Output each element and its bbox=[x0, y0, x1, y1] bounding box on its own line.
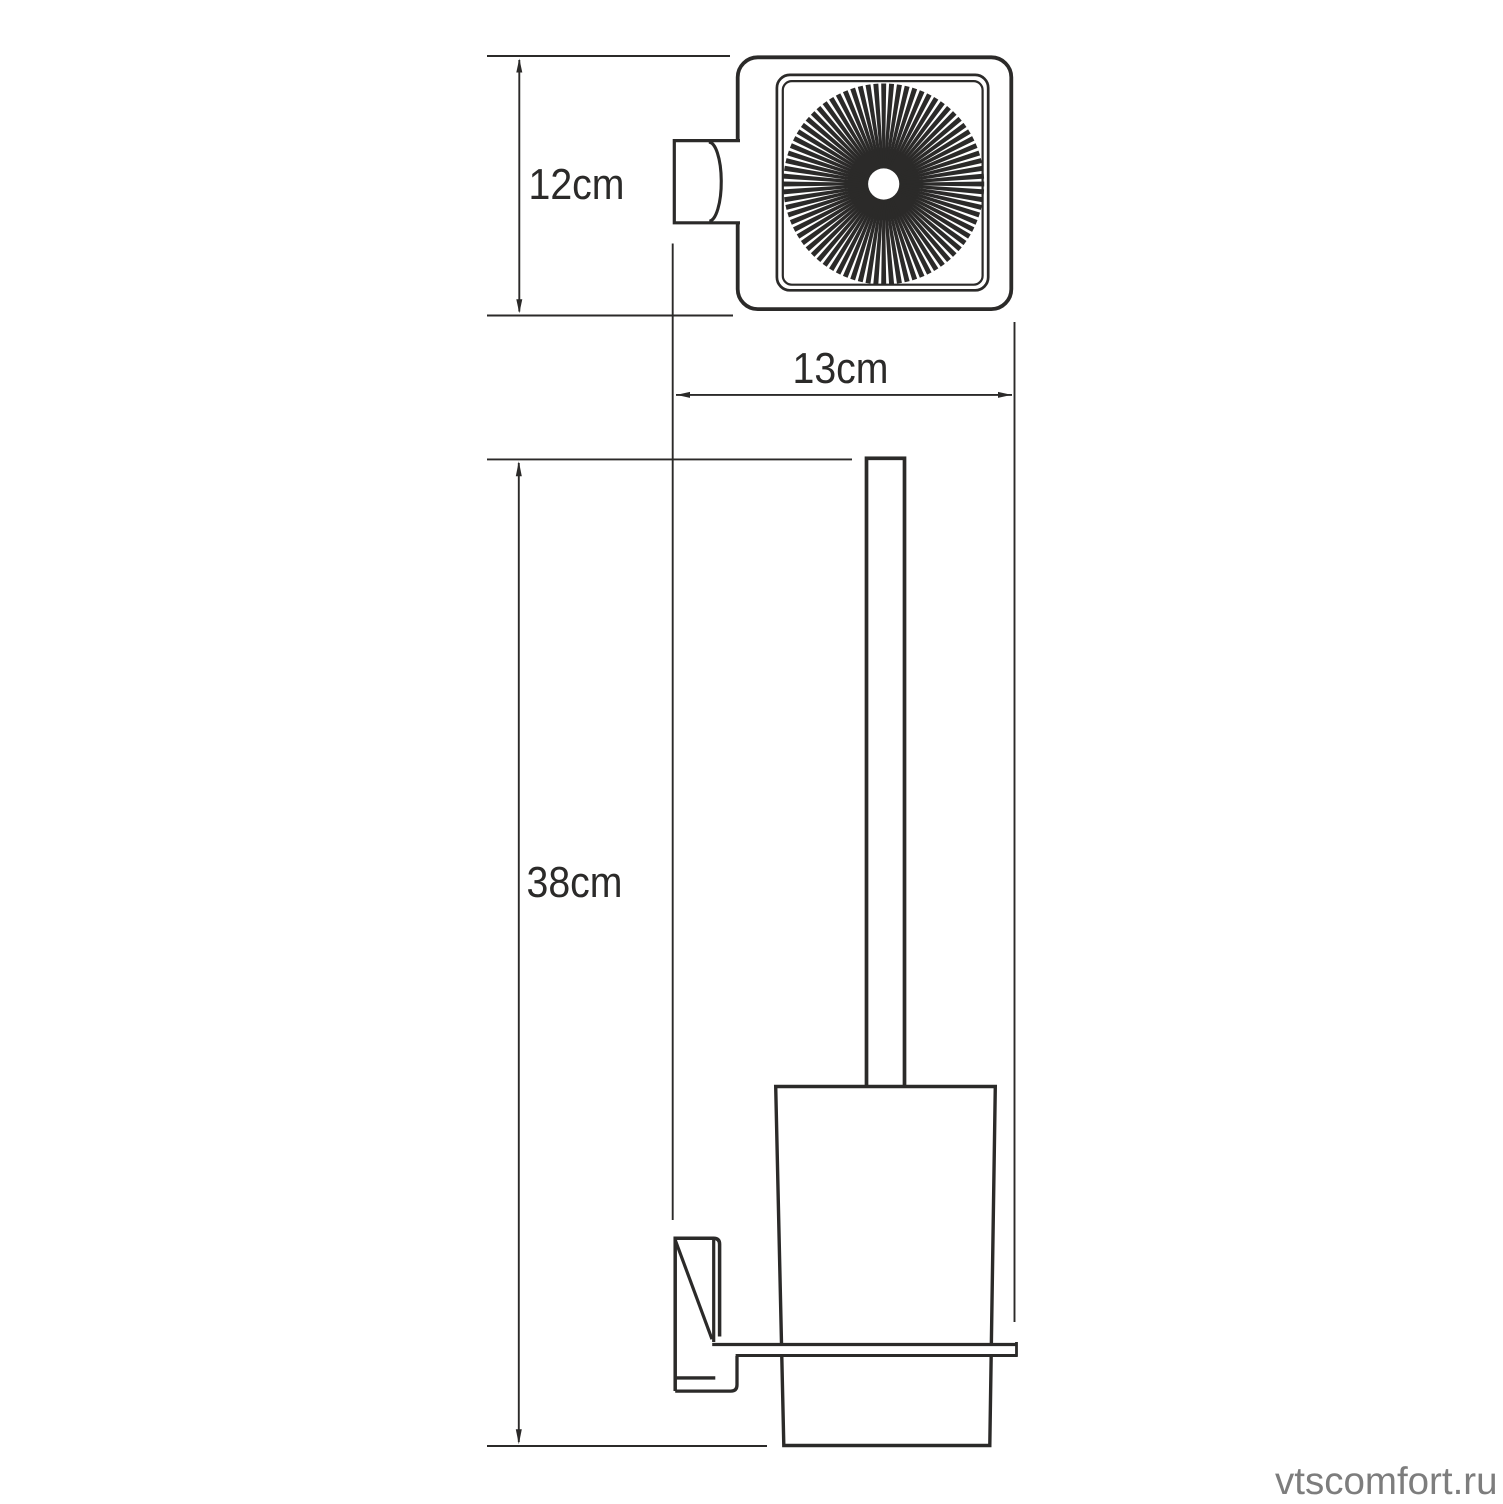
svg-text:13cm: 13cm bbox=[793, 345, 889, 393]
svg-text:12cm: 12cm bbox=[529, 161, 625, 209]
svg-text:vtscomfort.ru: vtscomfort.ru bbox=[1275, 1460, 1497, 1503]
svg-text:38cm: 38cm bbox=[527, 859, 623, 907]
